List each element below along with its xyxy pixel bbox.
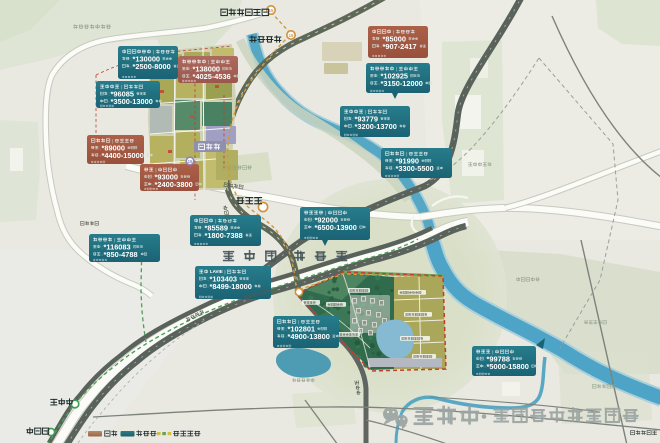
svg-text::: :: [394, 166, 395, 171]
svg-text::: :: [485, 356, 486, 361]
svg-text::: :: [109, 99, 110, 104]
svg-text::: :: [381, 44, 382, 49]
svg-text:15: 15: [289, 33, 294, 38]
svg-text:*3150-12000: *3150-12000: [381, 79, 423, 88]
svg-text:*3300-5500: *3300-5500: [396, 164, 434, 173]
svg-text::: :: [313, 225, 314, 230]
svg-text:*5000-15800: *5000-15800: [487, 362, 529, 371]
svg-text:*850-4788: *850-4788: [104, 250, 138, 259]
svg-text::: :: [131, 56, 132, 61]
svg-text::: :: [485, 364, 486, 369]
svg-text::: :: [286, 326, 287, 331]
svg-text::: :: [102, 252, 103, 257]
svg-text:*2500-8000: *2500-8000: [133, 62, 171, 71]
svg-text::: :: [153, 174, 154, 179]
svg-text:*8499-18000: *8499-18000: [210, 282, 252, 291]
svg-text:*3200-13700: *3200-13700: [355, 122, 397, 131]
svg-text:*4900-13800: *4900-13800: [288, 332, 330, 341]
svg-text:15: 15: [188, 159, 193, 164]
svg-text:*4400-15000: *4400-15000: [102, 151, 144, 160]
svg-text::: :: [208, 276, 209, 281]
svg-text::: :: [379, 81, 380, 86]
svg-text::: :: [109, 91, 110, 96]
svg-text::: :: [286, 334, 287, 339]
svg-text::: :: [100, 145, 101, 150]
svg-text::: :: [313, 217, 314, 222]
svg-text:*2400-3800: *2400-3800: [155, 180, 193, 189]
svg-text:*3500-13000: *3500-13000: [111, 97, 153, 106]
svg-text:*4025-4536: *4025-4536: [193, 72, 231, 81]
svg-text::: :: [191, 66, 192, 71]
svg-text::: :: [208, 284, 209, 289]
svg-text::: :: [394, 158, 395, 163]
svg-text:*907-2417: *907-2417: [383, 42, 417, 51]
svg-text::: :: [353, 116, 354, 121]
svg-text::: :: [102, 244, 103, 249]
svg-text:15: 15: [269, 8, 274, 13]
svg-text::: :: [381, 36, 382, 41]
svg-text:*6500-13900: *6500-13900: [315, 223, 357, 232]
svg-text::: :: [203, 233, 204, 238]
svg-text::: :: [100, 153, 101, 158]
svg-text:*1800-7388: *1800-7388: [205, 231, 243, 240]
svg-text::: :: [131, 64, 132, 69]
svg-text::: :: [203, 225, 204, 230]
svg-text::: :: [191, 74, 192, 79]
svg-text::: :: [353, 124, 354, 129]
svg-text::: :: [153, 182, 154, 187]
svg-text::: :: [379, 73, 380, 78]
